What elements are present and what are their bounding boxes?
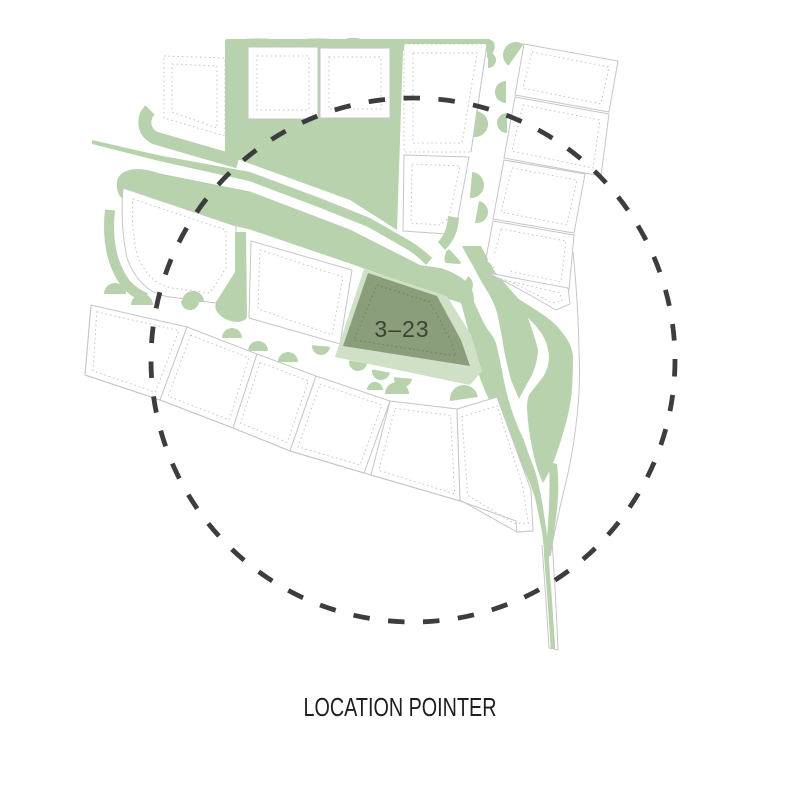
svg-text:3–23: 3–23 bbox=[374, 316, 429, 342]
svg-text:LOCATION POINTER: LOCATION POINTER bbox=[304, 692, 497, 722]
